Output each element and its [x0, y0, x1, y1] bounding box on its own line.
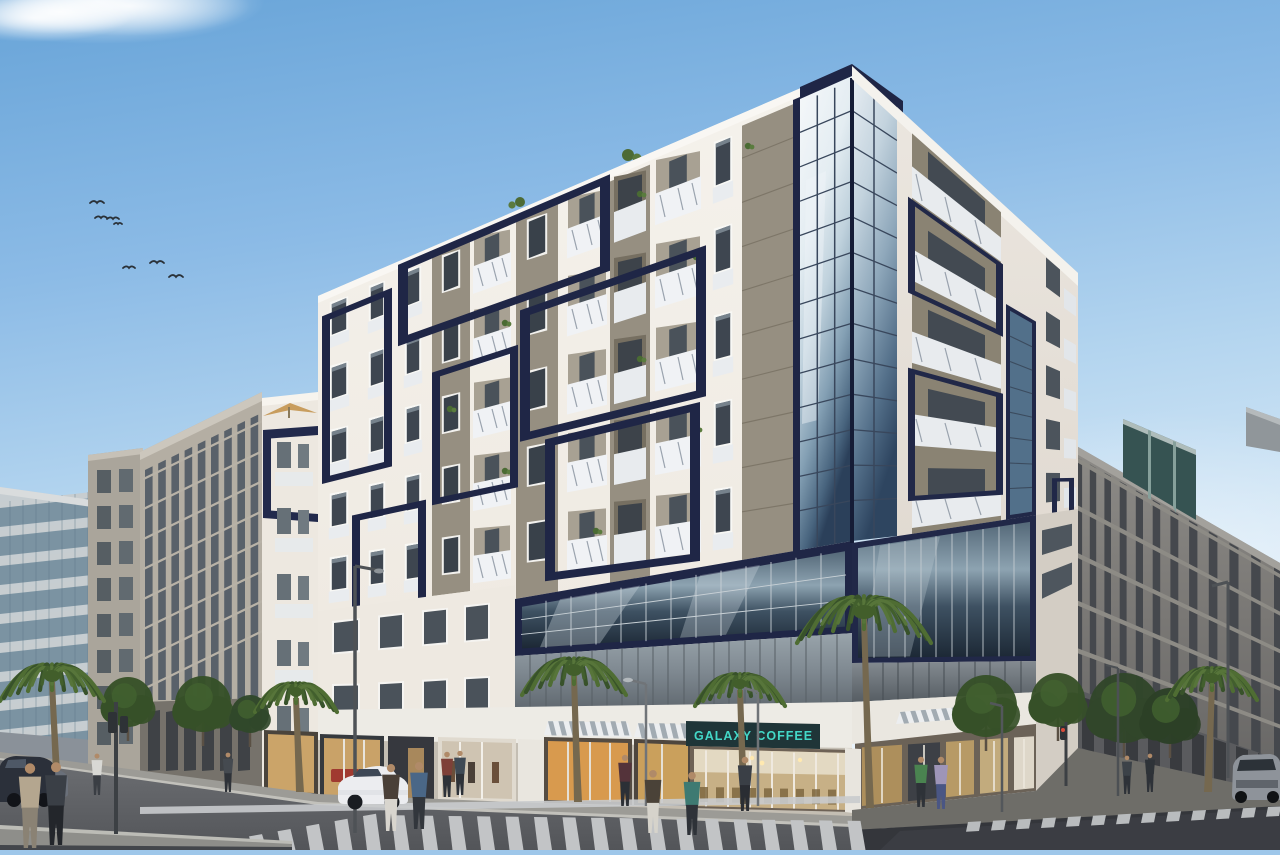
svg-text:GALAXY COFFEE: GALAXY COFFEE	[694, 729, 813, 743]
